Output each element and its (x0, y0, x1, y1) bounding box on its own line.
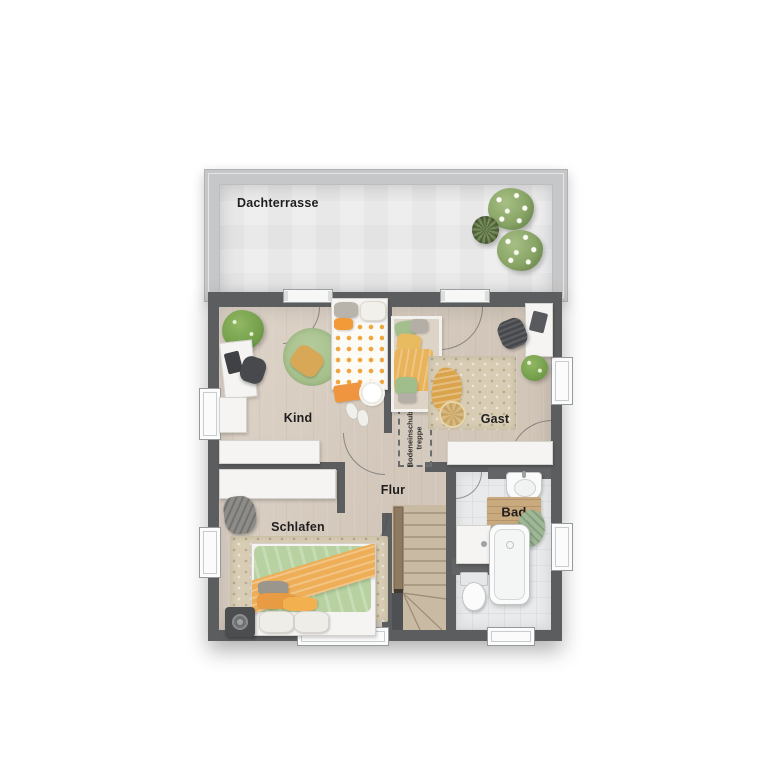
terrace-door (440, 289, 490, 303)
pillow (360, 301, 386, 321)
roof-terrace: Dachterrasse (204, 169, 568, 302)
attic-hatch: Bodeneinschub- treppe (398, 408, 432, 467)
duvet (334, 323, 384, 385)
faucet (481, 541, 487, 547)
bed-schlafen (251, 543, 376, 636)
bed-kind (331, 298, 388, 390)
drain (506, 541, 514, 549)
basin (514, 479, 536, 497)
pillow (398, 393, 416, 403)
bathtub (489, 524, 530, 605)
wall (337, 462, 345, 513)
pillow (334, 318, 353, 330)
staircase (392, 505, 446, 630)
pillow (294, 611, 329, 633)
room-label-schlafen: Schlafen (271, 520, 325, 534)
faucet (522, 471, 526, 478)
window (487, 627, 535, 646)
pillow (334, 302, 358, 318)
room-label-kind: Kind (284, 411, 313, 425)
terrace-door (283, 289, 333, 303)
window (199, 527, 221, 578)
toilet (462, 582, 486, 611)
floor-plan: Dachterrasse Bodeneinschub- treppe (0, 0, 775, 775)
side-cabinet (219, 397, 247, 433)
pillow (410, 319, 428, 333)
room-label-flur: Flur (381, 483, 405, 497)
vanity (456, 525, 491, 564)
sideboard (447, 441, 553, 465)
tub-interior (494, 529, 525, 600)
terrace-floor: Dachterrasse (219, 184, 553, 298)
bedside-table (361, 382, 383, 404)
terrace-label: Dachterrasse (237, 196, 319, 210)
pillow (259, 611, 294, 633)
flower-bush-icon (497, 230, 543, 271)
window (199, 388, 221, 440)
window (551, 357, 573, 405)
speaker (225, 607, 255, 637)
spiky-plant-icon (472, 216, 499, 244)
attic-hatch-label: Bodeneinschub- treppe (407, 408, 424, 467)
room-label-gast: Gast (481, 412, 510, 426)
window (551, 523, 573, 571)
plant-icon (521, 355, 548, 381)
sideboard (219, 440, 320, 464)
woven-basket (441, 403, 464, 426)
box (283, 597, 317, 611)
wardrobe (219, 469, 336, 499)
